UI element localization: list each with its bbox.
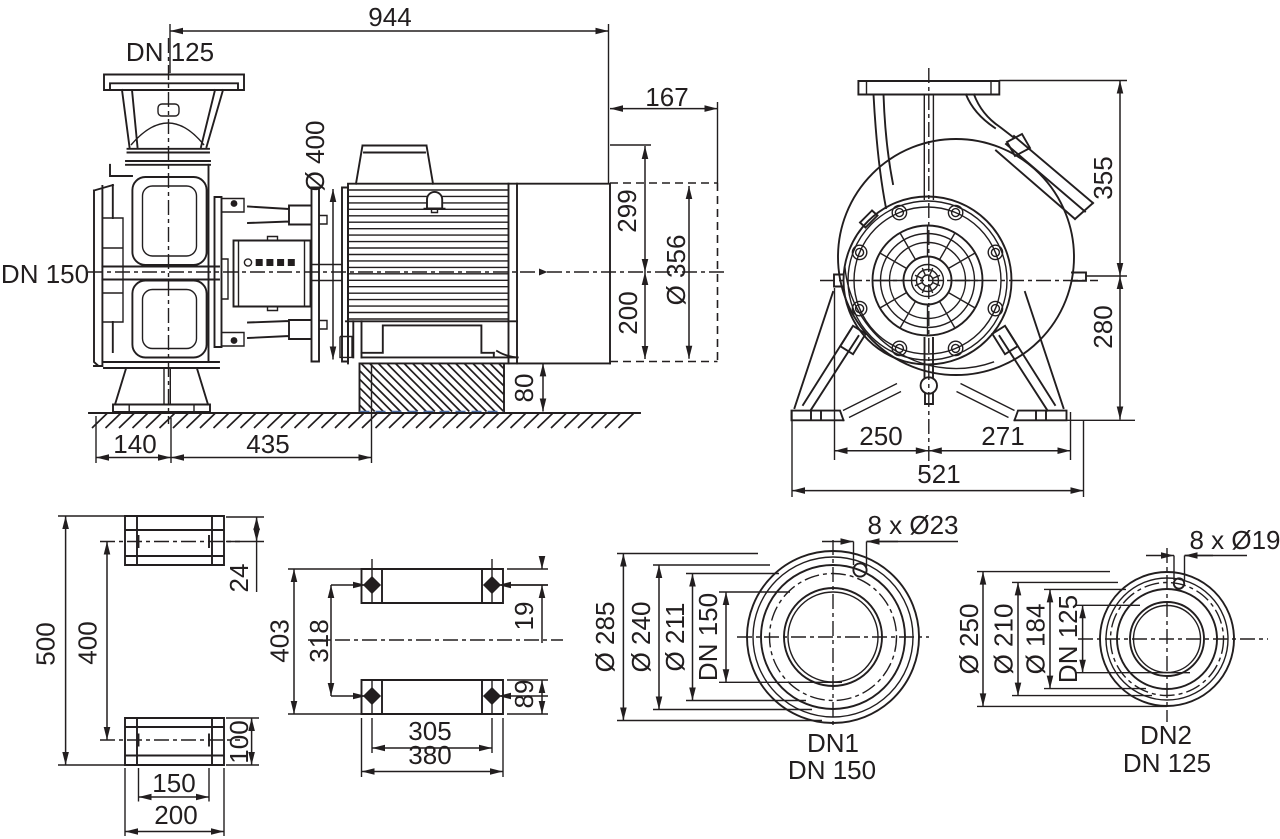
svg-text:Ø 356: Ø 356 <box>661 235 691 306</box>
svg-text:8 x Ø19: 8 x Ø19 <box>1189 525 1280 555</box>
svg-text:944: 944 <box>368 2 411 32</box>
svg-text:400: 400 <box>73 621 103 664</box>
svg-text:Ø 184: Ø 184 <box>1021 604 1051 675</box>
svg-text:403: 403 <box>265 619 295 662</box>
svg-text:140: 140 <box>113 429 156 459</box>
svg-text:271: 271 <box>981 421 1024 451</box>
svg-text:DN 125: DN 125 <box>126 37 214 67</box>
svg-text:DN 150: DN 150 <box>788 755 876 785</box>
svg-text:89: 89 <box>509 680 539 709</box>
svg-text:299: 299 <box>612 189 642 232</box>
svg-text:318: 318 <box>304 619 334 662</box>
svg-text:DN 150: DN 150 <box>693 593 723 681</box>
svg-text:355: 355 <box>1088 156 1118 199</box>
svg-text:DN1: DN1 <box>807 728 859 758</box>
svg-text:24: 24 <box>224 564 254 593</box>
svg-text:200: 200 <box>613 291 643 334</box>
svg-text:521: 521 <box>917 459 960 489</box>
svg-text:280: 280 <box>1088 305 1118 348</box>
svg-text:DN2: DN2 <box>1140 720 1192 750</box>
svg-text:Ø 211: Ø 211 <box>660 603 690 672</box>
svg-text:Ø 285: Ø 285 <box>590 602 620 673</box>
svg-text:150: 150 <box>152 768 195 798</box>
svg-text:19: 19 <box>509 602 539 631</box>
svg-text:8 x Ø23: 8 x Ø23 <box>867 510 958 540</box>
svg-text:Ø 400: Ø 400 <box>300 121 330 192</box>
svg-text:80: 80 <box>509 374 539 403</box>
svg-text:167: 167 <box>645 82 688 112</box>
svg-text:DN 125: DN 125 <box>1123 748 1211 778</box>
svg-text:Ø 210: Ø 210 <box>989 604 1019 675</box>
svg-text:200: 200 <box>154 800 197 830</box>
svg-text:DN 150: DN 150 <box>1 259 89 289</box>
svg-text:100: 100 <box>224 720 254 763</box>
svg-text:435: 435 <box>246 429 289 459</box>
svg-text:500: 500 <box>31 622 61 665</box>
svg-text:250: 250 <box>859 421 902 451</box>
svg-text:DN 125: DN 125 <box>1053 595 1083 683</box>
svg-text:Ø 240: Ø 240 <box>626 602 656 673</box>
svg-text:Ø 250: Ø 250 <box>954 604 984 675</box>
svg-text:380: 380 <box>408 740 451 770</box>
